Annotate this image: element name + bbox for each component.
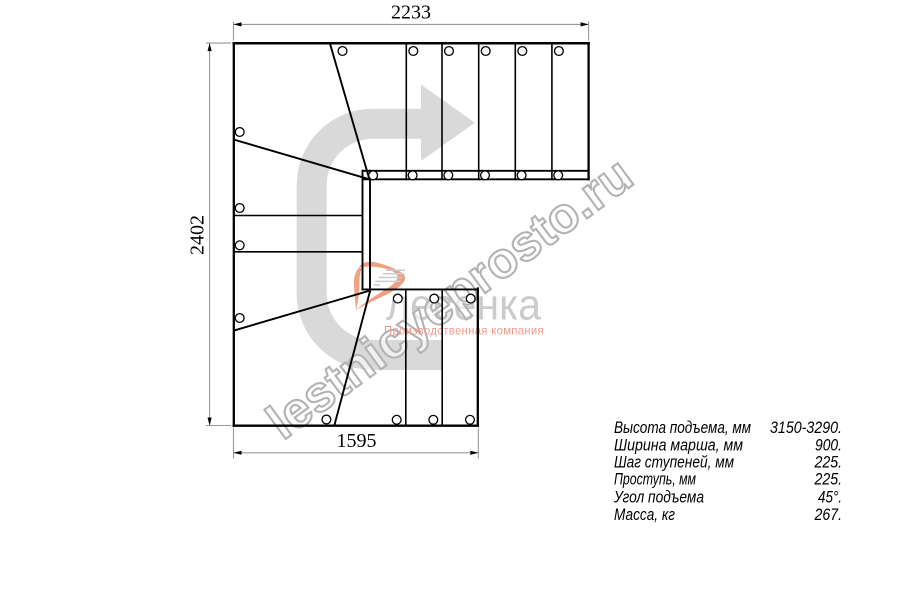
svg-text:Угол подъема: Угол подъема: [613, 487, 704, 506]
svg-text:3150-3290.: 3150-3290.: [770, 418, 842, 437]
svg-text:225.: 225.: [814, 469, 842, 488]
svg-text:Масса, кг: Масса, кг: [614, 505, 675, 524]
svg-text:Производственная компания: Производственная компания: [384, 324, 544, 338]
svg-text:Высота подъема, мм: Высота подъема, мм: [614, 418, 751, 437]
svg-text:2233: 2233: [391, 2, 431, 24]
svg-text:45°.: 45°.: [818, 487, 842, 506]
svg-text:2402: 2402: [187, 215, 209, 255]
svg-text:267.: 267.: [814, 505, 842, 524]
svg-text:1595: 1595: [337, 430, 377, 452]
svg-text:Проступь, мм: Проступь, мм: [614, 469, 696, 488]
